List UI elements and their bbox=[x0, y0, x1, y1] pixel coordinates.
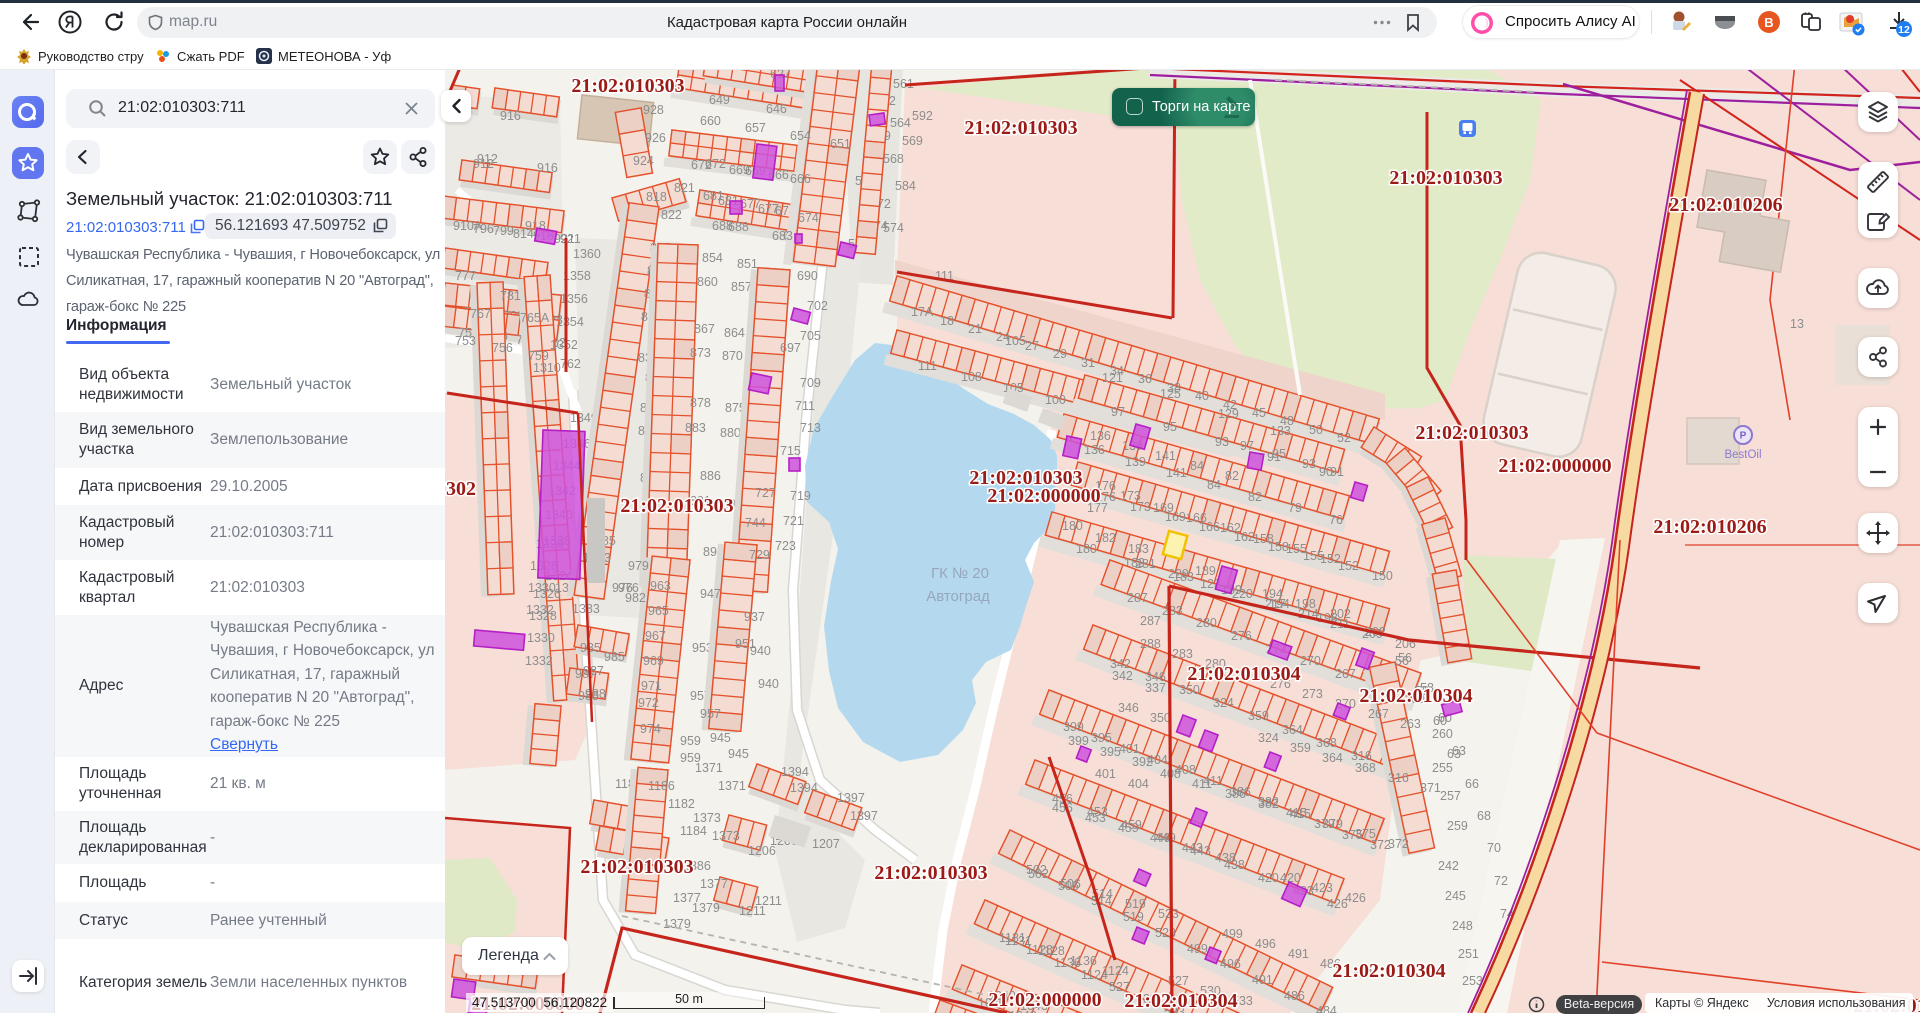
svg-text:438: 438 bbox=[1215, 851, 1236, 865]
svg-text:350: 350 bbox=[1150, 711, 1171, 725]
svg-text:864: 864 bbox=[724, 326, 745, 340]
svg-text:259: 259 bbox=[1447, 819, 1468, 833]
svg-text:17A: 17A bbox=[911, 305, 934, 319]
svg-text:1360: 1360 bbox=[573, 247, 601, 261]
svg-text:371: 371 bbox=[1420, 781, 1441, 795]
svg-text:BestOil: BestOil bbox=[1724, 449, 1761, 461]
svg-text:283: 283 bbox=[1172, 647, 1193, 661]
svg-text:68: 68 bbox=[1477, 809, 1491, 823]
svg-text:364: 364 bbox=[1322, 751, 1343, 765]
svg-text:972: 972 bbox=[638, 696, 659, 710]
svg-text:729: 729 bbox=[749, 548, 770, 562]
svg-text:709: 709 bbox=[800, 376, 821, 390]
svg-text:1356: 1356 bbox=[560, 292, 588, 306]
svg-text:878: 878 bbox=[690, 396, 711, 410]
svg-text:713: 713 bbox=[800, 421, 821, 435]
svg-text:584: 584 bbox=[895, 179, 916, 193]
svg-text:666: 666 bbox=[790, 172, 811, 186]
svg-text:386: 386 bbox=[1225, 787, 1246, 801]
svg-text:21:02:010303: 21:02:010303 bbox=[580, 856, 693, 878]
svg-text:97: 97 bbox=[1111, 405, 1125, 419]
svg-text:860: 860 bbox=[697, 275, 718, 289]
svg-text:21:02:010304: 21:02:010304 bbox=[1332, 960, 1445, 982]
svg-text:491: 491 bbox=[1252, 973, 1273, 987]
svg-text:459: 459 bbox=[1118, 821, 1139, 835]
svg-text:248: 248 bbox=[1452, 919, 1473, 933]
svg-text:926: 926 bbox=[645, 131, 666, 145]
svg-text:79: 79 bbox=[1288, 501, 1302, 515]
svg-text:449: 449 bbox=[1150, 831, 1171, 845]
svg-text:404: 404 bbox=[1128, 777, 1149, 791]
svg-text:657: 657 bbox=[745, 121, 766, 135]
svg-text:982: 982 bbox=[625, 591, 646, 605]
svg-text:45: 45 bbox=[1252, 406, 1266, 420]
svg-text:756: 756 bbox=[492, 341, 513, 355]
svg-text:220: 220 bbox=[1232, 587, 1253, 601]
svg-text:368: 368 bbox=[1355, 761, 1376, 775]
svg-text:368: 368 bbox=[1316, 736, 1337, 750]
svg-text:337: 337 bbox=[1145, 681, 1166, 695]
svg-text:453: 453 bbox=[1085, 811, 1106, 825]
svg-text:189: 189 bbox=[1195, 564, 1216, 578]
svg-text:672: 672 bbox=[705, 157, 726, 171]
svg-text:401: 401 bbox=[1119, 742, 1140, 756]
svg-text:502: 502 bbox=[1028, 867, 1049, 881]
svg-text:870: 870 bbox=[722, 349, 743, 363]
svg-text:82: 82 bbox=[1225, 469, 1239, 483]
svg-text:21:02:010303: 21:02:010303 bbox=[1415, 422, 1528, 444]
svg-text:646: 646 bbox=[766, 102, 787, 116]
svg-text:937: 937 bbox=[744, 610, 765, 624]
svg-text:Автоград: Автоград bbox=[926, 588, 990, 605]
svg-text:592: 592 bbox=[912, 109, 933, 123]
svg-text:765А: 765А bbox=[520, 311, 550, 325]
svg-text:36: 36 bbox=[1138, 372, 1152, 386]
svg-text:21:02:010304: 21:02:010304 bbox=[1124, 990, 1237, 1012]
svg-text:21: 21 bbox=[968, 322, 982, 336]
svg-text:574: 574 bbox=[883, 221, 904, 235]
svg-text:21:02:000000: 21:02:000000 bbox=[988, 989, 1101, 1011]
svg-text:822: 822 bbox=[661, 208, 682, 222]
svg-text:677: 677 bbox=[758, 202, 779, 216]
svg-text:886: 886 bbox=[700, 469, 721, 483]
svg-text:697: 697 bbox=[780, 341, 801, 355]
svg-text:988: 988 bbox=[578, 689, 599, 703]
svg-text:183: 183 bbox=[1128, 542, 1149, 556]
svg-text:180: 180 bbox=[1076, 542, 1097, 556]
svg-text:959: 959 bbox=[680, 751, 701, 765]
svg-text:1186: 1186 bbox=[648, 779, 675, 793]
svg-text:883: 883 bbox=[685, 421, 706, 435]
svg-text:324: 324 bbox=[1213, 696, 1234, 710]
svg-text:162: 162 bbox=[1220, 521, 1241, 535]
svg-text:324: 324 bbox=[1258, 731, 1279, 745]
svg-text:108: 108 bbox=[961, 370, 982, 384]
svg-text:169: 169 bbox=[1153, 501, 1174, 515]
svg-text:52: 52 bbox=[1337, 431, 1351, 445]
svg-text:1377: 1377 bbox=[700, 877, 728, 891]
svg-text:359: 359 bbox=[1248, 709, 1269, 723]
svg-text:21:02:010304: 21:02:010304 bbox=[1359, 685, 1472, 707]
svg-text:569: 569 bbox=[902, 134, 923, 148]
svg-text:1352: 1352 bbox=[550, 338, 578, 352]
svg-text:251: 251 bbox=[1458, 947, 1479, 961]
svg-text:683: 683 bbox=[772, 229, 793, 243]
svg-text:1394: 1394 bbox=[790, 781, 818, 795]
svg-text:1332: 1332 bbox=[525, 654, 553, 668]
svg-text:1371: 1371 bbox=[718, 779, 746, 793]
svg-text:985: 985 bbox=[580, 641, 601, 655]
svg-text:21:02:010303: 21:02:010303 bbox=[964, 117, 1077, 139]
svg-text:399: 399 bbox=[1068, 734, 1089, 748]
svg-text:674: 674 bbox=[798, 211, 819, 225]
svg-text:1131: 1131 bbox=[1005, 934, 1032, 948]
svg-text:245: 245 bbox=[1445, 889, 1466, 903]
svg-text:854: 854 bbox=[702, 251, 723, 265]
svg-text:263: 263 bbox=[1400, 717, 1421, 731]
svg-text:93: 93 bbox=[1302, 457, 1316, 471]
svg-text:519: 519 bbox=[1123, 910, 1144, 924]
svg-text:426: 426 bbox=[1345, 891, 1366, 905]
svg-text:21:02:010206: 21:02:010206 bbox=[1653, 516, 1766, 538]
svg-text:715: 715 bbox=[780, 444, 801, 458]
svg-text:987: 987 bbox=[575, 667, 596, 681]
svg-text:255: 255 bbox=[1432, 761, 1453, 775]
svg-text:1332: 1332 bbox=[526, 603, 554, 617]
svg-text:928: 928 bbox=[643, 103, 664, 117]
svg-text:40: 40 bbox=[1195, 389, 1209, 403]
svg-text:969: 969 bbox=[643, 654, 664, 668]
svg-text:1124: 1124 bbox=[1102, 964, 1129, 978]
svg-text:375: 375 bbox=[1355, 827, 1376, 841]
svg-text:519: 519 bbox=[1125, 897, 1146, 911]
svg-text:342: 342 bbox=[1112, 669, 1133, 683]
svg-text:1184: 1184 bbox=[680, 824, 707, 838]
svg-text:957: 957 bbox=[700, 707, 721, 721]
svg-text:947: 947 bbox=[700, 587, 721, 601]
svg-text:21:02:010303: 21:02:010303 bbox=[620, 495, 733, 517]
svg-text:136: 136 bbox=[1084, 443, 1105, 457]
svg-text:29: 29 bbox=[1053, 347, 1067, 361]
svg-text:13: 13 bbox=[1790, 317, 1804, 331]
svg-text:759: 759 bbox=[528, 349, 549, 363]
svg-text:880: 880 bbox=[720, 426, 741, 440]
svg-text:31: 31 bbox=[1081, 356, 1095, 370]
svg-text:152: 152 bbox=[1320, 552, 1341, 566]
svg-text:21:02:010206: 21:02:010206 bbox=[1669, 194, 1782, 216]
svg-text:56: 56 bbox=[1398, 651, 1412, 665]
svg-text:100: 100 bbox=[1045, 393, 1066, 407]
svg-text:799: 799 bbox=[493, 224, 514, 238]
svg-text:129: 129 bbox=[1218, 407, 1239, 421]
svg-text:979: 979 bbox=[628, 559, 649, 573]
svg-text:965: 965 bbox=[648, 604, 669, 618]
svg-text:12: 12 bbox=[1898, 24, 1910, 36]
svg-text:395: 395 bbox=[1100, 745, 1121, 759]
svg-text:651: 651 bbox=[830, 137, 851, 151]
svg-text:392: 392 bbox=[1132, 755, 1153, 769]
svg-text:873: 873 bbox=[690, 346, 711, 360]
svg-text:705: 705 bbox=[800, 329, 821, 343]
svg-text:401: 401 bbox=[1095, 767, 1116, 781]
svg-text:499: 499 bbox=[1222, 927, 1243, 941]
svg-text:316: 316 bbox=[1388, 771, 1409, 785]
svg-text:141: 141 bbox=[1166, 466, 1187, 480]
svg-text:649: 649 bbox=[709, 93, 730, 107]
svg-text:974: 974 bbox=[640, 722, 661, 736]
svg-text:711: 711 bbox=[795, 399, 815, 413]
svg-text:1128: 1128 bbox=[1038, 944, 1065, 958]
svg-text:372: 372 bbox=[1388, 837, 1409, 851]
svg-text:242: 242 bbox=[1438, 859, 1459, 873]
svg-text:924: 924 bbox=[633, 154, 654, 168]
svg-text:1207: 1207 bbox=[812, 837, 840, 851]
svg-text:719: 719 bbox=[790, 489, 811, 503]
svg-text:260: 260 bbox=[1432, 727, 1453, 741]
svg-text:727: 727 bbox=[755, 486, 776, 500]
svg-text:491: 491 bbox=[1288, 947, 1309, 961]
svg-text:867: 867 bbox=[694, 322, 715, 336]
svg-text:690: 690 bbox=[797, 269, 818, 283]
svg-text:921: 921 bbox=[560, 232, 581, 246]
svg-text:359: 359 bbox=[1290, 741, 1311, 755]
svg-text:395: 395 bbox=[1091, 731, 1112, 745]
svg-text:346: 346 bbox=[1118, 701, 1139, 715]
svg-text:136: 136 bbox=[1090, 429, 1111, 443]
svg-text:72: 72 bbox=[1494, 874, 1508, 888]
svg-text:288: 288 bbox=[1140, 637, 1161, 651]
svg-text:1397: 1397 bbox=[850, 809, 878, 823]
svg-text:152: 152 bbox=[1338, 559, 1359, 573]
svg-text:229: 229 bbox=[1168, 567, 1189, 581]
svg-text:150: 150 bbox=[1372, 569, 1393, 583]
svg-text:721: 721 bbox=[783, 514, 804, 528]
svg-text:350: 350 bbox=[1179, 683, 1200, 697]
svg-text:499: 499 bbox=[1187, 942, 1208, 956]
svg-text:940: 940 bbox=[758, 677, 779, 691]
svg-text:971: 971 bbox=[641, 679, 662, 693]
svg-text:496: 496 bbox=[1220, 957, 1241, 971]
svg-text:270: 270 bbox=[1300, 654, 1321, 668]
svg-text:781: 781 bbox=[500, 289, 521, 303]
svg-text:821: 821 bbox=[674, 181, 695, 195]
svg-text:912: 912 bbox=[473, 157, 494, 171]
svg-text:762: 762 bbox=[560, 357, 581, 371]
svg-text:951: 951 bbox=[735, 637, 756, 651]
svg-text:50: 50 bbox=[1309, 423, 1323, 437]
svg-text:744: 744 bbox=[745, 516, 766, 530]
svg-text:125: 125 bbox=[1160, 387, 1181, 401]
svg-text:443: 443 bbox=[1182, 841, 1203, 855]
svg-text:916: 916 bbox=[537, 161, 558, 175]
svg-text:486: 486 bbox=[1284, 989, 1305, 1003]
svg-text:963: 963 bbox=[650, 579, 671, 593]
svg-text:777: 777 bbox=[455, 269, 476, 283]
svg-text:1310: 1310 bbox=[533, 361, 561, 375]
svg-text:411: 411 bbox=[1192, 777, 1212, 791]
svg-text:723: 723 bbox=[775, 539, 796, 553]
svg-text:84: 84 bbox=[1207, 478, 1221, 492]
svg-text:506: 506 bbox=[1060, 877, 1081, 891]
svg-text:P: P bbox=[1740, 431, 1747, 442]
svg-text:280: 280 bbox=[1196, 616, 1217, 630]
svg-text:281: 281 bbox=[1135, 557, 1156, 571]
svg-text:916: 916 bbox=[500, 109, 521, 123]
svg-text:267: 267 bbox=[1335, 667, 1356, 681]
svg-text:1330: 1330 bbox=[528, 581, 556, 595]
svg-text:257: 257 bbox=[1440, 789, 1461, 803]
svg-text:702: 702 bbox=[807, 299, 828, 313]
svg-text:1394: 1394 bbox=[781, 765, 809, 779]
svg-text:267: 267 bbox=[1368, 707, 1389, 721]
svg-text:18: 18 bbox=[940, 314, 954, 328]
svg-text:66: 66 bbox=[1465, 777, 1479, 791]
svg-text:654: 654 bbox=[790, 129, 811, 143]
svg-text:82: 82 bbox=[1248, 490, 1262, 504]
svg-text:21:02:010303: 21:02:010303 bbox=[571, 75, 684, 97]
svg-text:564: 564 bbox=[890, 116, 911, 130]
svg-text:180: 180 bbox=[1062, 519, 1083, 533]
svg-text:1379: 1379 bbox=[692, 901, 720, 915]
svg-text:84: 84 bbox=[1190, 459, 1204, 473]
svg-text:273: 273 bbox=[1302, 687, 1323, 701]
svg-text:399: 399 bbox=[1063, 720, 1084, 734]
svg-text:133: 133 bbox=[1270, 424, 1291, 438]
svg-text:283: 283 bbox=[1162, 604, 1183, 618]
svg-text:420: 420 bbox=[1258, 871, 1279, 885]
svg-text:423: 423 bbox=[1312, 881, 1333, 895]
svg-text:753: 753 bbox=[455, 334, 476, 348]
svg-text:818: 818 bbox=[646, 190, 667, 204]
svg-text:182: 182 bbox=[1095, 531, 1116, 545]
svg-text:76: 76 bbox=[1329, 513, 1343, 527]
svg-text:21:02:010304: 21:02:010304 bbox=[1187, 663, 1300, 685]
svg-text:287: 287 bbox=[1140, 614, 1161, 628]
svg-text:688: 688 bbox=[712, 219, 733, 233]
svg-text:382: 382 bbox=[1258, 797, 1279, 811]
svg-text:21:02:010303: 21:02:010303 bbox=[1389, 167, 1502, 189]
svg-text:97: 97 bbox=[1240, 439, 1254, 453]
svg-text:1182: 1182 bbox=[668, 797, 695, 811]
svg-text:967: 967 bbox=[645, 629, 666, 643]
svg-text:95: 95 bbox=[1163, 420, 1177, 434]
svg-text:1379: 1379 bbox=[663, 917, 691, 931]
svg-text:63: 63 bbox=[1452, 744, 1466, 758]
svg-text:415: 415 bbox=[1290, 807, 1311, 821]
svg-text:568: 568 bbox=[883, 152, 904, 166]
svg-text:851: 851 bbox=[737, 257, 758, 271]
svg-text:1397: 1397 bbox=[837, 791, 865, 805]
svg-text:1373: 1373 bbox=[693, 811, 721, 825]
svg-text:91: 91 bbox=[1330, 465, 1344, 479]
svg-text:141: 141 bbox=[1155, 449, 1176, 463]
svg-text:379: 379 bbox=[1322, 817, 1343, 831]
svg-text:660: 660 bbox=[700, 114, 721, 128]
svg-text:287: 287 bbox=[1127, 591, 1148, 605]
svg-text:1330: 1330 bbox=[527, 631, 555, 645]
svg-text:95: 95 bbox=[1272, 447, 1286, 461]
svg-text:173: 173 bbox=[1120, 489, 1141, 503]
svg-text:364: 364 bbox=[1282, 723, 1303, 737]
svg-text:484: 484 bbox=[1316, 1004, 1337, 1013]
svg-text:1211: 1211 bbox=[755, 894, 782, 908]
svg-text:B: B bbox=[1764, 15, 1773, 30]
svg-text:1373: 1373 bbox=[712, 829, 740, 843]
svg-text:166: 166 bbox=[1186, 511, 1207, 525]
svg-text:158: 158 bbox=[1253, 532, 1274, 546]
svg-text:945: 945 bbox=[728, 747, 749, 761]
svg-text:985: 985 bbox=[604, 650, 625, 664]
svg-text:1136: 1136 bbox=[1070, 954, 1097, 968]
svg-text:21:02:000000: 21:02:000000 bbox=[1498, 455, 1611, 477]
svg-text:1354: 1354 bbox=[556, 315, 584, 329]
svg-text:796: 796 bbox=[473, 222, 494, 236]
svg-text:139: 139 bbox=[1125, 455, 1146, 469]
svg-text:276: 276 bbox=[1231, 629, 1252, 643]
svg-text:111: 111 bbox=[918, 359, 937, 373]
svg-text:496: 496 bbox=[1255, 937, 1276, 951]
svg-text:21:02:000000: 21:02:000000 bbox=[987, 485, 1100, 507]
svg-text:945: 945 bbox=[710, 731, 731, 745]
svg-text:ГК № 20: ГК № 20 bbox=[931, 565, 989, 582]
svg-text:70: 70 bbox=[1487, 841, 1501, 855]
svg-text:21:02:010303: 21:02:010303 bbox=[874, 862, 987, 884]
svg-text:0302: 0302 bbox=[445, 478, 476, 500]
svg-text:27: 27 bbox=[1025, 339, 1039, 353]
svg-text:93: 93 bbox=[1215, 435, 1229, 449]
svg-text:767: 767 bbox=[470, 307, 491, 321]
svg-text:959: 959 bbox=[680, 734, 701, 748]
svg-text:105: 105 bbox=[1005, 334, 1026, 348]
svg-text:638: 638 bbox=[640, 70, 661, 71]
svg-text:523: 523 bbox=[1158, 907, 1179, 921]
svg-text:857: 857 bbox=[731, 280, 752, 294]
svg-text:155: 155 bbox=[1286, 542, 1307, 556]
svg-text:121: 121 bbox=[1102, 371, 1123, 385]
